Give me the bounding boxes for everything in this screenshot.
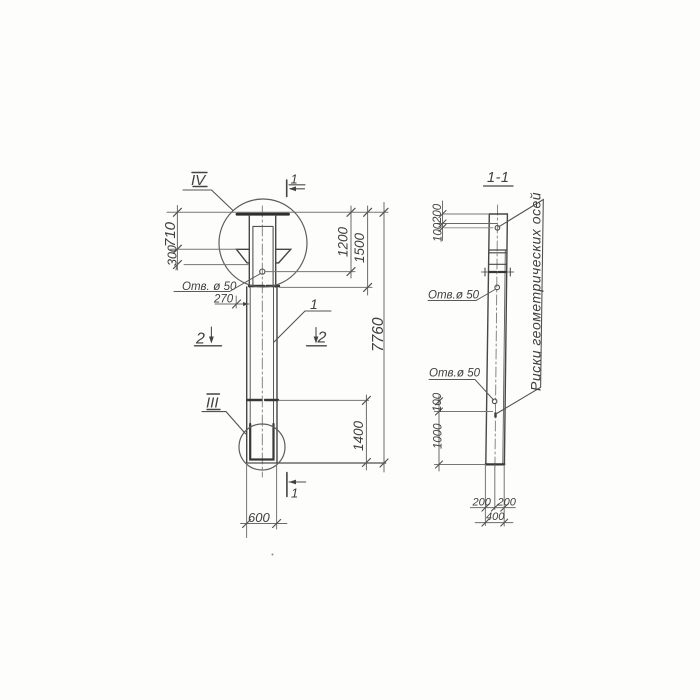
svg-text:1000: 1000 bbox=[433, 423, 445, 449]
svg-text:100: 100 bbox=[433, 222, 445, 242]
svg-text:1200: 1200 bbox=[336, 226, 351, 257]
svg-text:Отв. ø 50: Отв. ø 50 bbox=[182, 279, 237, 293]
svg-text:Отв.ø 50: Отв.ø 50 bbox=[428, 288, 480, 302]
svg-text:Отв.ø 50: Отв.ø 50 bbox=[429, 366, 481, 380]
svg-text:200: 200 bbox=[432, 203, 444, 224]
svg-text:1400: 1400 bbox=[351, 420, 366, 451]
svg-text:710: 710 bbox=[162, 221, 179, 247]
svg-text:400: 400 bbox=[486, 511, 505, 523]
svg-text:2: 2 bbox=[195, 331, 205, 348]
svg-text:Риски геометрических осей: Риски геометрических осей bbox=[528, 192, 544, 391]
svg-text:600: 600 bbox=[248, 510, 270, 525]
svg-text:200: 200 bbox=[497, 497, 517, 509]
svg-text:1: 1 bbox=[310, 296, 318, 312]
svg-text:7760: 7760 bbox=[370, 317, 387, 352]
svg-text:200: 200 bbox=[472, 497, 492, 509]
svg-text:300: 300 bbox=[166, 245, 180, 266]
svg-text:1: 1 bbox=[291, 486, 298, 501]
svg-text:2: 2 bbox=[317, 330, 327, 347]
svg-text:100: 100 bbox=[432, 392, 444, 412]
svg-text:1-1: 1-1 bbox=[487, 170, 509, 186]
svg-text:1500: 1500 bbox=[352, 232, 367, 263]
